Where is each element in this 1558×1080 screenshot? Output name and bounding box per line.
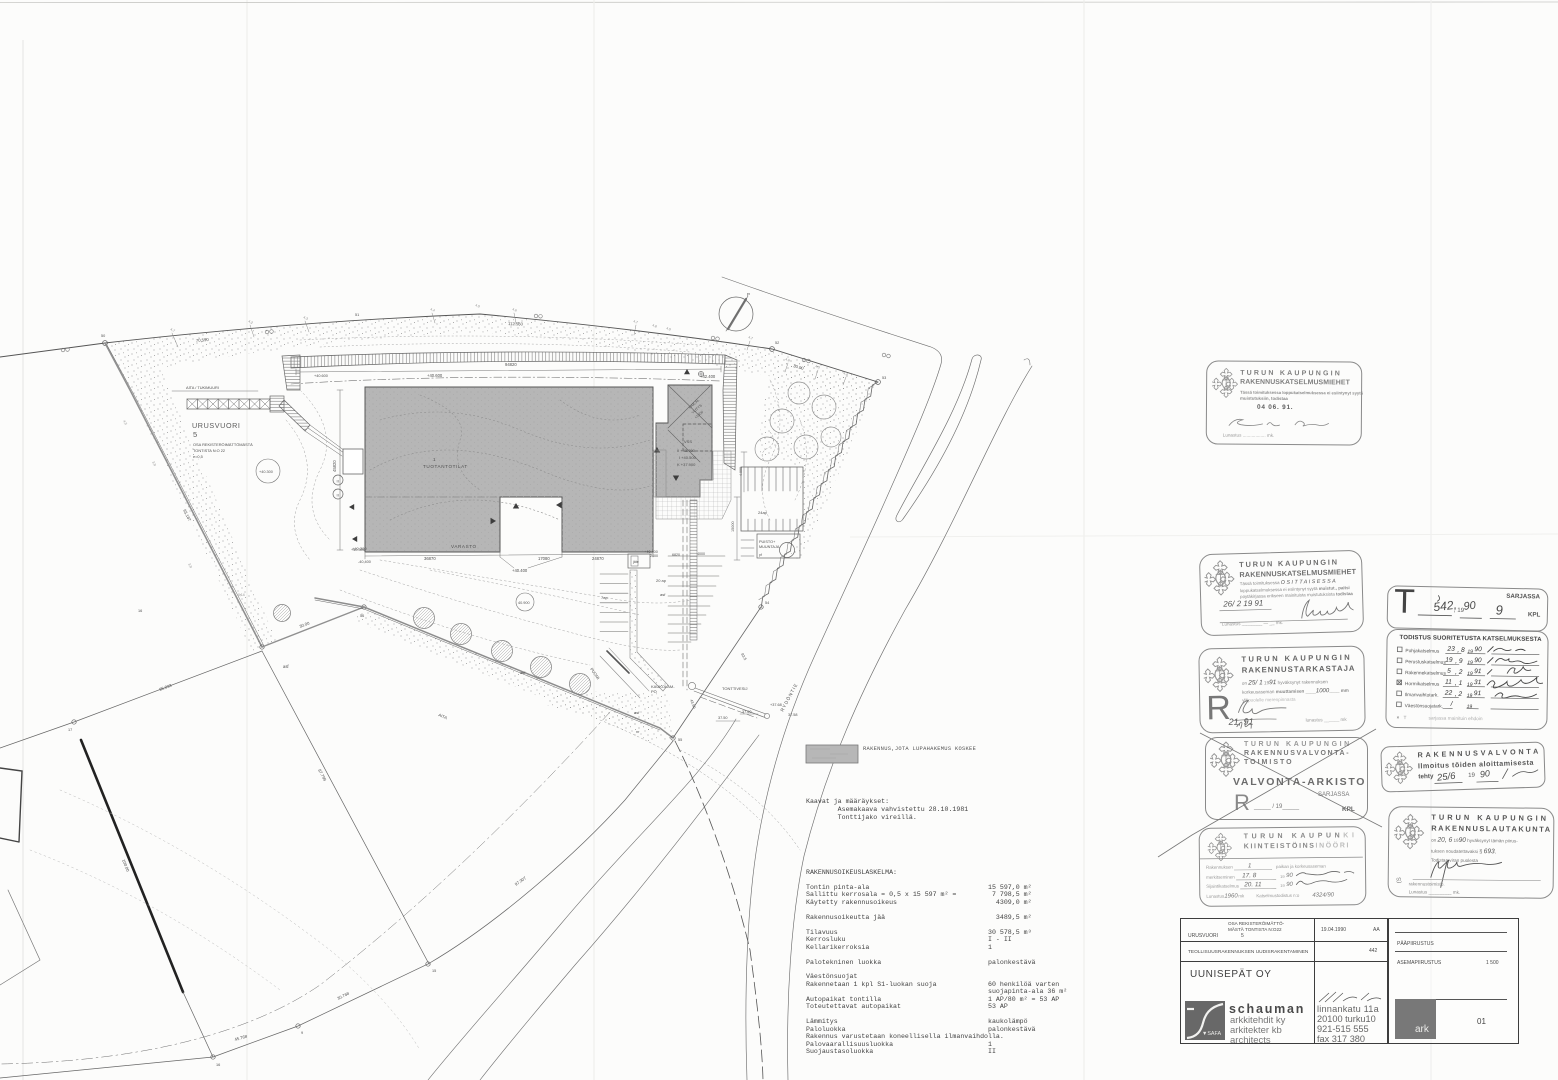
svg-text:0,14: 0,14 [238, 593, 245, 597]
svg-text:+40.600: +40.600 [314, 374, 328, 378]
svg-text:19: 19 [1467, 660, 1473, 666]
svg-text:+40.600: +40.600 [427, 373, 443, 378]
svg-text:16: 16 [216, 1063, 220, 1067]
svg-text:37.58: 37.58 [788, 713, 798, 717]
svg-text:19: 19 [1467, 649, 1473, 655]
svg-text:e=0,5: e=0,5 [193, 454, 203, 459]
svg-text:1: 1 [433, 457, 436, 462]
svg-text:▼SAFA: ▼SAFA [1202, 1031, 1222, 1037]
svg-text:91: 91 [1474, 668, 1482, 675]
svg-text:Rakennekatselmus: Rakennekatselmus [1405, 670, 1446, 677]
svg-text:+42.400: +42.400 [700, 374, 716, 379]
svg-text:85.833: 85.833 [159, 682, 173, 691]
svg-text:, 9: , 9 [1455, 658, 1463, 665]
svg-text:Pohjakatselmus: Pohjakatselmus [1405, 648, 1440, 654]
svg-text:5: 5 [1447, 668, 1451, 675]
svg-text:4,4: 4,4 [430, 307, 436, 312]
svg-text:Perustuskatselmus: Perustuskatselmus [1405, 659, 1446, 666]
svg-text:15000: 15000 [731, 521, 735, 532]
svg-text:45820: 45820 [332, 460, 337, 472]
svg-text:5: 5 [193, 430, 197, 439]
svg-text:VARASTO: VARASTO [451, 544, 477, 549]
svg-text:55: 55 [678, 738, 682, 742]
svg-text:4,7: 4,7 [748, 335, 754, 340]
svg-text:Lunastus: Lunastus [1206, 894, 1225, 899]
svg-text:2400: 2400 [650, 554, 658, 558]
svg-text:4.000: 4.000 [739, 467, 743, 476]
svg-text:19: 19 [1467, 671, 1473, 677]
svg-text:52: 52 [775, 341, 779, 345]
svg-text:19: 19 [1280, 883, 1285, 888]
svg-text:22: 22 [1444, 690, 1453, 697]
svg-text:+40.400: +40.400 [512, 568, 528, 573]
svg-text:mk: mk [1238, 893, 1245, 898]
svg-text:Rakennuksen: Rakennuksen [1206, 865, 1233, 870]
svg-text:3,9: 3,9 [151, 461, 157, 467]
svg-text:90: 90 [1474, 646, 1482, 653]
svg-text:PUISTO+: PUISTO+ [759, 540, 776, 544]
svg-text:11: 11 [1445, 679, 1452, 686]
svg-text:AITA: AITA [438, 712, 448, 720]
svg-text:paikan ja korkeusaseman: paikan ja korkeusaseman [1276, 864, 1326, 870]
svg-text:90: 90 [1286, 882, 1293, 888]
svg-text:Ilmanvaihtotark.: Ilmanvaihtotark. [1405, 692, 1439, 698]
svg-text:23: 23 [1446, 646, 1455, 653]
svg-text:I +40.500: I +40.500 [679, 455, 697, 460]
svg-text:24870: 24870 [592, 556, 604, 561]
svg-text:19: 19 [1280, 874, 1285, 879]
svg-text:37.50: 37.50 [718, 716, 728, 720]
svg-text:17. 8: 17. 8 [1242, 872, 1257, 879]
svg-text:, 2: , 2 [1455, 669, 1463, 676]
svg-text:1960: 1960 [1224, 893, 1238, 899]
svg-text:51: 51 [355, 313, 359, 317]
svg-text:94820: 94820 [505, 362, 517, 367]
svg-text:9: 9 [301, 1031, 303, 1035]
svg-text:53: 53 [882, 376, 886, 380]
svg-text:37.60: 37.60 [742, 710, 752, 714]
svg-text:AITA / TUKIMUURI: AITA / TUKIMUURI [186, 385, 219, 390]
svg-text:II: II [337, 479, 339, 484]
svg-text:19: 19 [1467, 682, 1473, 688]
svg-text:, 2: , 2 [1455, 691, 1463, 698]
svg-text:4000: 4000 [697, 552, 705, 556]
svg-text:4,8: 4,8 [652, 323, 658, 328]
svg-text:16: 16 [138, 609, 142, 613]
svg-text:40.900: 40.900 [518, 601, 530, 605]
svg-text:30.768: 30.768 [336, 990, 350, 1000]
svg-text:17: 17 [68, 728, 72, 732]
svg-text:asf: asf [660, 592, 666, 597]
svg-text:II +43.700: II +43.700 [677, 448, 696, 453]
svg-text:25/6: 25/6 [1435, 771, 1456, 784]
svg-text:Väestönsuojatark.: Väestönsuojatark. [1405, 703, 1443, 710]
svg-text:, 8: , 8 [1457, 647, 1465, 654]
svg-text:30.00: 30.00 [299, 620, 311, 629]
svg-text:4,6: 4,6 [512, 307, 518, 312]
svg-text:II: II [337, 493, 339, 498]
svg-text:4,7: 4,7 [633, 319, 639, 324]
svg-text:83.5: 83.5 [740, 653, 747, 661]
svg-text:4,2: 4,2 [248, 319, 254, 325]
svg-text:6820: 6820 [672, 553, 680, 557]
svg-text:17080: 17080 [538, 556, 550, 561]
svg-text:asf: asf [520, 670, 526, 675]
svg-text:4,5: 4,5 [122, 420, 128, 426]
svg-text:97.307: 97.307 [514, 875, 528, 887]
svg-text:36870: 36870 [424, 556, 436, 561]
svg-text:1: 1 [1248, 863, 1251, 869]
svg-text:50: 50 [101, 334, 105, 338]
svg-text:, 1: , 1 [1455, 680, 1463, 687]
svg-text:90: 90 [1463, 599, 1477, 612]
svg-text:+40.300: +40.300 [352, 546, 367, 551]
svg-text:31: 31 [1474, 679, 1482, 686]
svg-text:K +37.900: K +37.900 [677, 462, 696, 467]
svg-text:19: 19 [1467, 693, 1473, 699]
svg-text:9: 9 [1495, 602, 1503, 617]
svg-text:/: / [1450, 701, 1454, 708]
svg-text:pf: pf [759, 553, 762, 557]
svg-text:4324/90: 4324/90 [1312, 892, 1334, 898]
svg-text:TUOTANTOTILAT: TUOTANTOTILAT [423, 464, 468, 469]
svg-text:-40,400: -40,400 [358, 560, 371, 564]
svg-text:TONTTIVESIJ: TONTTIVESIJ [722, 686, 747, 691]
svg-text:+40.300: +40.300 [259, 470, 273, 474]
svg-text:19: 19 [1445, 657, 1453, 664]
svg-text:4,7: 4,7 [170, 327, 176, 333]
svg-text:PÖ: PÖ [651, 689, 657, 694]
svg-text:OSA REKISTERÖIMÄTTÖMÄSTÄ: OSA REKISTERÖIMÄTTÖMÄSTÄ [193, 442, 253, 447]
svg-text:54: 54 [765, 601, 769, 605]
svg-text:VSS: VSS [684, 439, 692, 444]
svg-text:7ap: 7ap [601, 595, 608, 600]
svg-text:4,0: 4,0 [666, 326, 672, 331]
svg-text:asf: asf [283, 664, 289, 669]
svg-text:Katselmustodistus n:o: Katselmustodistus n:o [1256, 893, 1300, 898]
svg-text:20. 11: 20. 11 [1243, 881, 1262, 888]
svg-text:87.799: 87.799 [317, 768, 328, 782]
svg-text:4,3: 4,3 [303, 315, 309, 321]
svg-text:P: P [747, 292, 750, 297]
svg-text:asf: asf [634, 710, 640, 715]
svg-text:3,9: 3,9 [187, 563, 193, 569]
svg-text:URUSVUORI: URUSVUORI [192, 421, 241, 430]
svg-text:90: 90 [1474, 657, 1482, 664]
svg-text:TONTISTA N:O 22: TONTISTA N:O 22 [193, 448, 225, 453]
svg-text:+37.68: +37.68 [770, 703, 782, 707]
svg-text:RYDÖNTIE: RYDÖNTIE [779, 682, 799, 713]
svg-text:sarjassa mainituin ehdoin: sarjassa mainituin ehdoin [1428, 715, 1483, 722]
svg-text:56: 56 [360, 614, 364, 618]
svg-text:43.50: 43.50 [689, 699, 696, 709]
svg-text:Sijaintikatselmus: Sijaintikatselmus [1206, 883, 1240, 888]
svg-text:19: 19 [1467, 704, 1473, 710]
svg-text:Hormikatselmus: Hormikatselmus [1405, 681, 1440, 687]
svg-text:91: 91 [1474, 690, 1482, 697]
svg-text:45.768: 45.768 [234, 1033, 248, 1042]
svg-text:20 ap: 20 ap [656, 578, 667, 583]
svg-text:jäte: jäte [632, 560, 639, 564]
svg-text:merkitseminen: merkitseminen [1206, 874, 1235, 879]
svg-text:PUOMI: PUOMI [589, 667, 601, 681]
svg-text:4,0: 4,0 [475, 303, 481, 308]
svg-text:90: 90 [1479, 768, 1490, 779]
svg-text:MUUNTAJA: MUUNTAJA [759, 545, 780, 549]
svg-text:90: 90 [1286, 873, 1293, 879]
svg-text:15: 15 [432, 969, 436, 973]
